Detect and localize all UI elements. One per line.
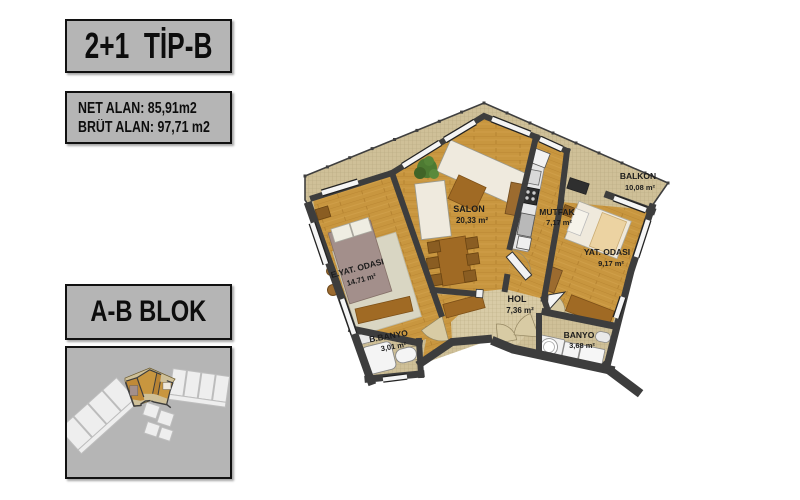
svg-text:E.YAT. ODASI: E.YAT. ODASI (330, 256, 385, 280)
svg-text:B.BANYO: B.BANYO (368, 328, 409, 345)
svg-text:HOL: HOL (508, 294, 528, 304)
svg-text:10,08 m²: 10,08 m² (625, 183, 656, 192)
svg-text:SALON: SALON (453, 204, 485, 214)
svg-text:MUTFAK: MUTFAK (539, 207, 575, 217)
svg-text:7,36 m²: 7,36 m² (506, 306, 534, 315)
svg-text:7,17 m²: 7,17 m² (546, 218, 572, 227)
svg-text:BANYO: BANYO (564, 330, 595, 340)
svg-text:YAT. ODASI: YAT. ODASI (584, 247, 630, 257)
svg-text:9,17 m²: 9,17 m² (598, 259, 624, 268)
svg-text:14.71 m²: 14.71 m² (346, 271, 378, 288)
svg-text:3,68 m²: 3,68 m² (569, 341, 595, 350)
svg-text:20,33 m²: 20,33 m² (456, 216, 488, 225)
svg-text:BALKON: BALKON (620, 171, 656, 181)
svg-text:3,01 m²: 3,01 m² (380, 340, 408, 353)
